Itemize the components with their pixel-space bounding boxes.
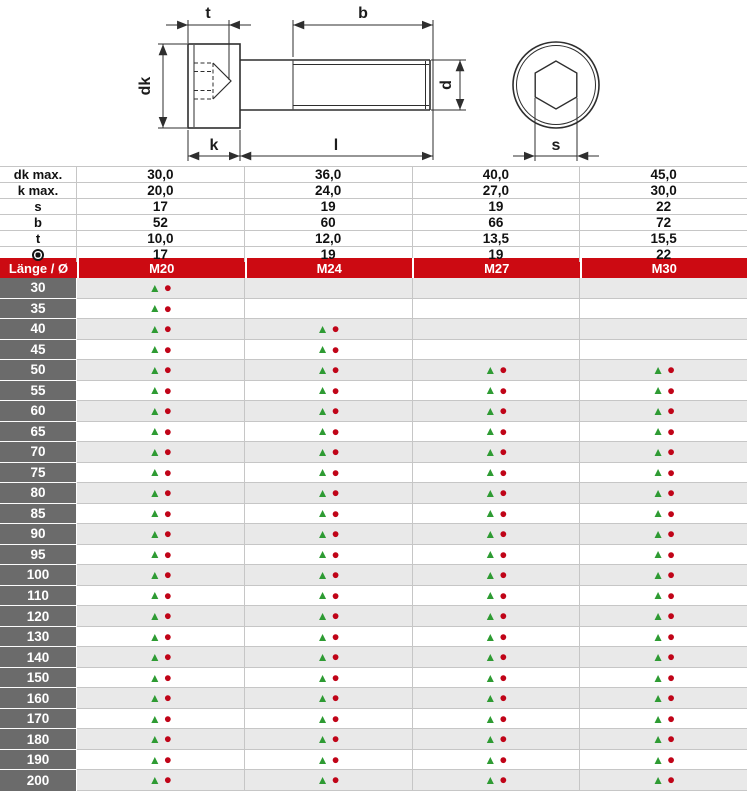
circle-marker: ● (667, 507, 675, 521)
circle-marker: ● (164, 753, 172, 767)
length-cell: 100 (0, 565, 77, 586)
availability-cell: ▲● (413, 627, 581, 648)
availability-cell: ▲● (413, 401, 581, 422)
availability-cell: ▲● (245, 709, 413, 730)
circle-marker: ● (667, 363, 675, 377)
triangle-marker: ▲ (484, 446, 496, 458)
circle-marker: ● (499, 671, 507, 685)
table-row: 35▲● (0, 299, 747, 320)
availability-cell: ▲● (580, 504, 747, 525)
availability-cell: ▲● (245, 360, 413, 381)
availability-cell: ▲● (580, 360, 747, 381)
availability-cell (413, 340, 581, 361)
availability-cell: ▲● (77, 340, 245, 361)
table-row: 100▲●▲●▲●▲● (0, 565, 747, 586)
availability-cell: ▲● (413, 422, 581, 443)
triangle-marker: ▲ (484, 384, 496, 396)
availability-cell: ▲● (580, 442, 747, 463)
triangle-marker: ▲ (149, 569, 161, 581)
triangle-marker: ▲ (484, 610, 496, 622)
availability-cell: ▲● (77, 360, 245, 381)
circle-marker: ● (164, 466, 172, 480)
dim-label-t: t (205, 5, 211, 22)
circle-marker: ● (164, 302, 172, 316)
spec-row: s17191922 (0, 199, 747, 215)
triangle-marker: ▲ (149, 425, 161, 437)
availability-cell: ▲● (245, 545, 413, 566)
triangle-marker: ▲ (149, 364, 161, 376)
length-cell: 180 (0, 729, 77, 750)
table-row: 170▲●▲●▲●▲● (0, 709, 747, 730)
circle-marker: ● (667, 753, 675, 767)
circle-marker: ● (667, 466, 675, 480)
availability-cell: ▲● (580, 750, 747, 771)
spec-value-cell: 17 (77, 199, 245, 214)
circle-marker: ● (331, 384, 339, 398)
availability-cell: ▲● (245, 647, 413, 668)
availability-cell: ▲● (245, 422, 413, 443)
triangle-marker: ▲ (149, 282, 161, 294)
circle-marker: ● (667, 404, 675, 418)
table-row: 160▲●▲●▲●▲● (0, 688, 747, 709)
triangle-marker: ▲ (652, 754, 664, 766)
size-header-cell: M30 (580, 258, 747, 278)
availability-cell: ▲● (77, 319, 245, 340)
circle-marker: ● (164, 384, 172, 398)
availability-cell: ▲● (580, 483, 747, 504)
triangle-marker: ▲ (484, 507, 496, 519)
availability-cell: ▲● (77, 668, 245, 689)
triangle-marker: ▲ (652, 610, 664, 622)
circle-marker: ● (331, 691, 339, 705)
circle-marker: ● (499, 548, 507, 562)
circle-marker: ● (331, 343, 339, 357)
triangle-marker: ▲ (484, 425, 496, 437)
availability-cell: ▲● (413, 524, 581, 545)
triangle-marker: ▲ (149, 733, 161, 745)
triangle-marker: ▲ (149, 507, 161, 519)
availability-cell: ▲● (580, 627, 747, 648)
length-cell: 160 (0, 688, 77, 709)
triangle-marker: ▲ (149, 384, 161, 396)
spec-row: k max.20,024,027,030,0 (0, 183, 747, 199)
circle-marker: ● (164, 650, 172, 664)
availability-cell: ▲● (413, 688, 581, 709)
spec-row: b52606672 (0, 215, 747, 231)
circle-marker: ● (331, 363, 339, 377)
circle-marker: ● (331, 773, 339, 787)
circle-marker: ● (499, 363, 507, 377)
triangle-marker: ▲ (652, 446, 664, 458)
availability-cell: ▲● (413, 565, 581, 586)
length-cell: 50 (0, 360, 77, 381)
dim-label-dk: dk (137, 77, 154, 96)
length-cell: 85 (0, 504, 77, 525)
circle-marker: ● (331, 486, 339, 500)
length-cell: 65 (0, 422, 77, 443)
availability-cell: ▲● (245, 729, 413, 750)
circle-marker: ● (331, 404, 339, 418)
availability-cell: ▲● (580, 565, 747, 586)
length-cell: 130 (0, 627, 77, 648)
length-cell: 45 (0, 340, 77, 361)
availability-cell: ▲● (77, 463, 245, 484)
triangle-marker: ▲ (652, 651, 664, 663)
length-cell: 60 (0, 401, 77, 422)
triangle-marker: ▲ (652, 528, 664, 540)
triangle-marker: ▲ (149, 466, 161, 478)
circle-marker: ● (331, 548, 339, 562)
catalog-page: t b dk k l d s dk max.30,036,040,045,0k … (0, 0, 747, 791)
availability-cell: ▲● (77, 442, 245, 463)
spec-value-cell: 20,0 (77, 183, 245, 198)
circle-marker: ● (164, 589, 172, 603)
side-view (188, 44, 430, 128)
triangle-marker: ▲ (149, 713, 161, 725)
availability-cell (413, 299, 581, 320)
availability-cell (580, 299, 747, 320)
circle-marker: ● (164, 609, 172, 623)
length-cell: 95 (0, 545, 77, 566)
availability-cell: ▲● (77, 422, 245, 443)
circle-marker: ● (164, 548, 172, 562)
availability-cell: ▲● (77, 729, 245, 750)
availability-cell: ▲● (580, 401, 747, 422)
triangle-marker: ▲ (149, 774, 161, 786)
circle-marker: ● (164, 445, 172, 459)
length-cell: 120 (0, 606, 77, 627)
circle-marker: ● (499, 486, 507, 500)
availability-cell: ▲● (580, 463, 747, 484)
spec-row-label: b (0, 215, 77, 230)
availability-cell: ▲● (413, 770, 581, 791)
triangle-marker: ▲ (317, 343, 329, 355)
availability-cell: ▲● (413, 750, 581, 771)
table-row: 75▲●▲●▲●▲● (0, 463, 747, 484)
circle-marker: ● (499, 568, 507, 582)
triangle-marker: ▲ (149, 651, 161, 663)
spec-value-cell: 13,5 (413, 231, 581, 246)
length-diameter-header: Länge / Ø (0, 258, 77, 278)
spec-value-cell: 24,0 (245, 183, 413, 198)
availability-cell: ▲● (77, 709, 245, 730)
length-cell: 150 (0, 668, 77, 689)
spec-value-cell: 45,0 (580, 167, 747, 182)
triangle-marker: ▲ (317, 733, 329, 745)
triangle-marker: ▲ (484, 548, 496, 560)
table-row: 55▲●▲●▲●▲● (0, 381, 747, 402)
triangle-marker: ▲ (652, 631, 664, 643)
availability-cell: ▲● (413, 360, 581, 381)
availability-cell (245, 299, 413, 320)
circle-marker: ● (164, 404, 172, 418)
size-header-cell: M20 (77, 258, 245, 278)
circle-marker: ● (499, 773, 507, 787)
triangle-marker: ▲ (317, 692, 329, 704)
technical-drawing: t b dk k l d s (0, 0, 747, 166)
availability-cell: ▲● (77, 586, 245, 607)
availability-cell: ▲● (77, 545, 245, 566)
circle-marker: ● (331, 671, 339, 685)
availability-cell: ▲● (413, 483, 581, 504)
triangle-marker: ▲ (484, 364, 496, 376)
triangle-marker: ▲ (317, 713, 329, 725)
triangle-marker: ▲ (317, 487, 329, 499)
triangle-marker: ▲ (484, 754, 496, 766)
availability-cell: ▲● (580, 668, 747, 689)
table-row: 70▲●▲●▲●▲● (0, 442, 747, 463)
triangle-marker: ▲ (317, 754, 329, 766)
length-cell: 75 (0, 463, 77, 484)
circle-marker: ● (667, 609, 675, 623)
circle-marker: ● (667, 630, 675, 644)
availability-cell: ▲● (413, 668, 581, 689)
triangle-marker: ▲ (652, 774, 664, 786)
dimension-lines (158, 20, 599, 161)
table-row: 110▲●▲●▲●▲● (0, 586, 747, 607)
availability-cell: ▲● (413, 647, 581, 668)
availability-cell: ▲● (580, 524, 747, 545)
spec-row: dk max.30,036,040,045,0 (0, 167, 747, 183)
triangle-marker: ▲ (652, 589, 664, 601)
triangle-marker: ▲ (317, 507, 329, 519)
triangle-marker: ▲ (484, 487, 496, 499)
spec-value-cell: 22 (580, 199, 747, 214)
availability-cell: ▲● (77, 401, 245, 422)
triangle-marker: ▲ (317, 569, 329, 581)
dim-label-l: l (334, 137, 338, 154)
table-row: 180▲●▲●▲●▲● (0, 729, 747, 750)
spec-value-cell: 36,0 (245, 167, 413, 182)
availability-cell: ▲● (413, 504, 581, 525)
availability-cell: ▲● (245, 606, 413, 627)
availability-cell: ▲● (77, 627, 245, 648)
circle-marker: ● (331, 568, 339, 582)
availability-cell: ▲● (245, 688, 413, 709)
table-row: 95▲●▲●▲●▲● (0, 545, 747, 566)
circle-marker: ● (164, 281, 172, 295)
circle-marker: ● (667, 732, 675, 746)
circle-marker: ● (164, 773, 172, 787)
circle-marker: ● (667, 384, 675, 398)
circle-marker: ● (499, 630, 507, 644)
table-row: 65▲●▲●▲●▲● (0, 422, 747, 443)
circle-marker: ● (331, 732, 339, 746)
availability-cell: ▲● (77, 278, 245, 299)
triangle-marker: ▲ (149, 754, 161, 766)
circle-marker: ● (667, 691, 675, 705)
spec-value-cell: 72 (580, 215, 747, 230)
availability-cell: ▲● (245, 340, 413, 361)
length-table: 30▲●35▲●40▲●▲●45▲●▲●50▲●▲●▲●▲●55▲●▲●▲●▲●… (0, 278, 747, 791)
triangle-marker: ▲ (484, 651, 496, 663)
availability-cell: ▲● (245, 750, 413, 771)
circle-marker: ● (164, 527, 172, 541)
socket-cone (213, 63, 231, 99)
circle-marker: ● (164, 712, 172, 726)
table-row: 80▲●▲●▲●▲● (0, 483, 747, 504)
availability-cell: ▲● (77, 750, 245, 771)
length-cell: 80 (0, 483, 77, 504)
length-cell: 55 (0, 381, 77, 402)
availability-cell (413, 319, 581, 340)
availability-cell: ▲● (245, 381, 413, 402)
circle-marker: ● (164, 363, 172, 377)
availability-cell: ▲● (580, 606, 747, 627)
triangle-marker: ▲ (149, 631, 161, 643)
availability-cell (580, 319, 747, 340)
triangle-marker: ▲ (149, 589, 161, 601)
table-row: 50▲●▲●▲●▲● (0, 360, 747, 381)
circle-marker: ● (499, 404, 507, 418)
circle-marker: ● (164, 425, 172, 439)
availability-cell: ▲● (413, 709, 581, 730)
triangle-marker: ▲ (484, 528, 496, 540)
availability-cell: ▲● (77, 524, 245, 545)
availability-cell: ▲● (77, 565, 245, 586)
spec-value-cell: 15,5 (580, 231, 747, 246)
availability-cell (245, 278, 413, 299)
circle-marker: ● (499, 650, 507, 664)
table-row: 90▲●▲●▲●▲● (0, 524, 747, 545)
triangle-marker: ▲ (652, 507, 664, 519)
triangle-marker: ▲ (149, 528, 161, 540)
circle-marker: ● (164, 322, 172, 336)
triangle-marker: ▲ (317, 405, 329, 417)
triangle-marker: ▲ (484, 569, 496, 581)
availability-cell: ▲● (77, 647, 245, 668)
availability-cell: ▲● (580, 381, 747, 402)
availability-cell: ▲● (245, 504, 413, 525)
availability-cell: ▲● (413, 381, 581, 402)
spec-value-cell: 30,0 (580, 183, 747, 198)
dim-label-s: s (552, 137, 561, 154)
circle-marker: ● (667, 650, 675, 664)
triangle-marker: ▲ (652, 733, 664, 745)
availability-cell: ▲● (245, 565, 413, 586)
circle-marker: ● (499, 691, 507, 705)
triangle-marker: ▲ (317, 528, 329, 540)
table-row: 200▲●▲●▲●▲● (0, 770, 747, 791)
availability-cell: ▲● (580, 688, 747, 709)
availability-cell: ▲● (77, 688, 245, 709)
circle-marker: ● (164, 568, 172, 582)
length-cell: 90 (0, 524, 77, 545)
spec-value-cell: 60 (245, 215, 413, 230)
table-row: 140▲●▲●▲●▲● (0, 647, 747, 668)
circle-marker: ● (667, 527, 675, 541)
triangle-marker: ▲ (317, 631, 329, 643)
socket-hidden-lines (194, 63, 213, 99)
triangle-marker: ▲ (317, 610, 329, 622)
triangle-marker: ▲ (484, 405, 496, 417)
circle-marker: ● (667, 589, 675, 603)
table-row: 190▲●▲●▲●▲● (0, 750, 747, 771)
circle-marker: ● (499, 609, 507, 623)
length-cell: 140 (0, 647, 77, 668)
triangle-marker: ▲ (317, 651, 329, 663)
size-header-cell: M27 (412, 258, 580, 278)
circle-marker: ● (667, 548, 675, 562)
circle-marker: ● (667, 773, 675, 787)
triangle-marker: ▲ (317, 446, 329, 458)
length-cell: 70 (0, 442, 77, 463)
spec-value-cell: 27,0 (413, 183, 581, 198)
dim-label-b: b (358, 5, 368, 22)
circle-marker: ● (164, 630, 172, 644)
triangle-marker: ▲ (149, 446, 161, 458)
spec-value-cell: 19 (413, 199, 581, 214)
spec-row-label: k max. (0, 183, 77, 198)
table-row: 60▲●▲●▲●▲● (0, 401, 747, 422)
circle-marker: ● (499, 732, 507, 746)
table-row: 30▲● (0, 278, 747, 299)
circle-marker: ● (164, 486, 172, 500)
triangle-marker: ▲ (652, 466, 664, 478)
triangle-marker: ▲ (484, 774, 496, 786)
availability-cell: ▲● (245, 442, 413, 463)
triangle-marker: ▲ (149, 672, 161, 684)
circle-marker: ● (331, 322, 339, 336)
triangle-marker: ▲ (652, 672, 664, 684)
circle-marker: ● (331, 507, 339, 521)
circle-marker: ● (667, 712, 675, 726)
triangle-marker: ▲ (317, 548, 329, 560)
spec-row-label: dk max. (0, 167, 77, 182)
circle-marker: ● (667, 425, 675, 439)
circle-marker: ● (331, 630, 339, 644)
length-cell: 35 (0, 299, 77, 320)
availability-cell: ▲● (245, 668, 413, 689)
availability-cell: ▲● (580, 586, 747, 607)
spec-value-cell: 52 (77, 215, 245, 230)
spec-row-label: t (0, 231, 77, 246)
length-cell: 40 (0, 319, 77, 340)
circle-marker: ● (164, 691, 172, 705)
availability-cell: ▲● (580, 770, 747, 791)
length-cell: 190 (0, 750, 77, 771)
circle-marker: ● (164, 671, 172, 685)
availability-cell: ▲● (580, 545, 747, 566)
availability-cell: ▲● (77, 606, 245, 627)
availability-cell: ▲● (413, 442, 581, 463)
table-row: 40▲●▲● (0, 319, 747, 340)
spec-value-cell: 40,0 (413, 167, 581, 182)
circle-marker: ● (499, 425, 507, 439)
circle-marker: ● (331, 425, 339, 439)
spec-table: dk max.30,036,040,045,0k max.20,024,027,… (0, 166, 747, 258)
circle-marker: ● (499, 507, 507, 521)
circle-marker: ● (331, 445, 339, 459)
circle-marker: ● (164, 343, 172, 357)
availability-cell: ▲● (245, 770, 413, 791)
triangle-marker: ▲ (317, 672, 329, 684)
availability-cell: ▲● (580, 647, 747, 668)
circle-marker: ● (499, 589, 507, 603)
triangle-marker: ▲ (484, 466, 496, 478)
circle-marker: ● (667, 486, 675, 500)
availability-cell: ▲● (413, 463, 581, 484)
availability-cell: ▲● (245, 319, 413, 340)
end-view (513, 42, 599, 128)
availability-cell: ▲● (580, 729, 747, 750)
triangle-marker: ▲ (652, 713, 664, 725)
circle-marker: ● (331, 650, 339, 664)
availability-cell: ▲● (245, 524, 413, 545)
table-row: 45▲●▲● (0, 340, 747, 361)
hex-socket-outline (535, 61, 577, 109)
availability-cell: ▲● (413, 586, 581, 607)
